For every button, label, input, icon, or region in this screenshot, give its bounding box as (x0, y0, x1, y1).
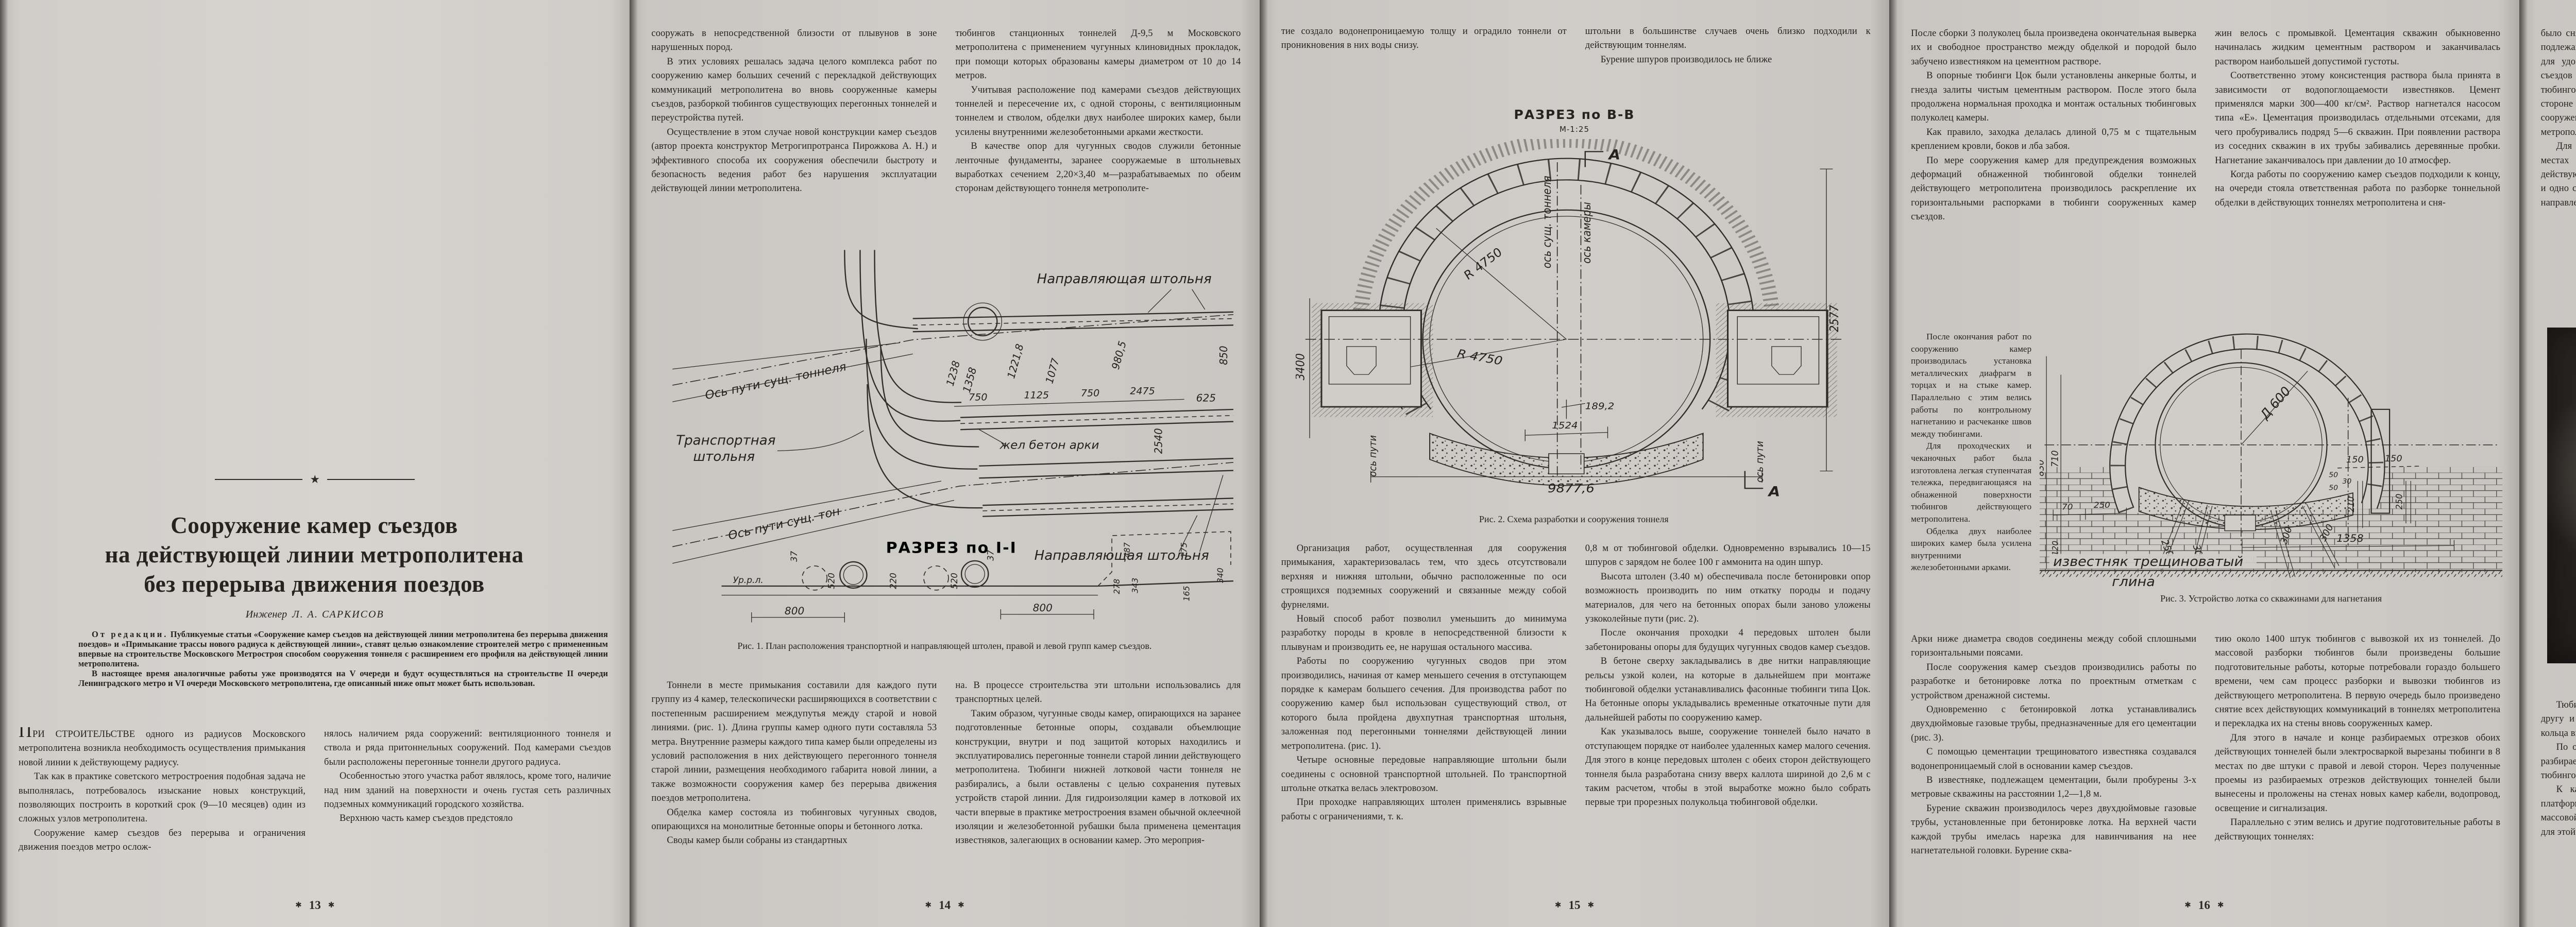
body-column: Тюбинговые кольца обделки были очень пло… (2541, 698, 2576, 868)
page-16: После сборки 3 полуколец была произведен… (1889, 0, 2519, 927)
article-title: Сооружение камер съездов на действующей … (31, 511, 598, 599)
page-number: ✱17✱ (2519, 898, 2576, 911)
svg-text:750: 750 (1081, 388, 1099, 399)
fig1-section-heading: РАЗРЕЗ по I-I (886, 539, 1017, 557)
figure-4-caption: Рис. 4. Вид камеры после разборки обделк… (2540, 671, 2576, 683)
svg-text:70: 70 (2062, 502, 2073, 512)
page-17: было снято до 50—60% болтов по фланцам и… (2519, 0, 2576, 927)
figure-1-plan-drawing: Направляющая штольня Ось пути сущ. тонне… (644, 233, 1244, 637)
page-number: ✱14✱ (630, 899, 1259, 912)
svg-text:800: 800 (1033, 602, 1053, 614)
svg-text:220: 220 (888, 573, 899, 589)
svg-text:R 4750: R 4750 (1461, 245, 1505, 282)
svg-text:520: 520 (826, 573, 836, 589)
svg-text:штольня: штольня (693, 449, 755, 465)
svg-text:150: 150 (2346, 455, 2364, 465)
svg-text:520: 520 (949, 573, 959, 589)
body-column-narrow: После окончания работ по сооружению каме… (1911, 331, 2031, 589)
fig1-transport-gallery-label: Транспортная (676, 433, 776, 449)
fig3-clay-label: глина (2112, 574, 2155, 587)
svg-text:30: 30 (2343, 477, 2352, 486)
journal-spread: ★ Сооружение камер съездов на действующе… (0, 0, 2576, 927)
tunnel-photo-ribs (2547, 328, 2576, 663)
svg-text:340: 340 (1215, 568, 1225, 583)
body-column: было снято до 50—60% болтов по фланцам и… (2541, 27, 2576, 323)
article-title-line: на действующей линии метрополитена (31, 540, 598, 570)
svg-text:210: 210 (2346, 496, 2356, 512)
svg-text:850: 850 (1218, 346, 1230, 365)
svg-text:50: 50 (2329, 484, 2338, 492)
body-column: штольни в большинстве случаев очень близ… (1585, 25, 1871, 98)
body-column: тие создало водонепроницаемую толщу и ог… (1281, 25, 1567, 98)
body-column: ПРИ СТРОИТЕЛЬСТВЕ одного из радиусов Мос… (19, 727, 306, 893)
article-title-line: без перерыва движения поездов (31, 570, 598, 599)
svg-text:175: 175 (1179, 542, 1189, 558)
body-column: нялось наличием ряда сооружений: вентиля… (324, 727, 611, 893)
fig1-guide-gallery-label: Направляющая штольня (1037, 271, 1212, 287)
svg-text:1077: 1077 (1044, 357, 1062, 385)
fig1-arches-label: жел бетон арки (999, 439, 1099, 452)
figure-2-heading: РАЗРЕЗ по В-В (1260, 107, 1889, 122)
page-15: тие создало водонепроницаемую толщу и ог… (1260, 0, 1889, 927)
svg-text:1358: 1358 (961, 366, 979, 394)
body-column: тию около 1400 штук тюбингов с вывозкой … (2215, 632, 2500, 889)
fig1-datum-label: Ур.р.л. (733, 575, 764, 585)
svg-text:278: 278 (1112, 579, 1122, 594)
svg-text:250: 250 (2094, 500, 2110, 510)
figure-2-caption: Рис. 2. Схема разработки и сооружения то… (1342, 513, 1806, 525)
svg-text:А: А (1767, 484, 1780, 500)
svg-text:1221,8: 1221,8 (1005, 342, 1026, 380)
star-divider-icon: ★ (0, 477, 630, 482)
svg-text:R 4750: R 4750 (1456, 347, 1504, 368)
page-13: ★ Сооружение камер съездов на действующе… (0, 0, 630, 927)
svg-text:2540: 2540 (1153, 428, 1165, 454)
svg-text:980,5: 980,5 (1110, 340, 1129, 371)
svg-text:189,2: 189,2 (1585, 401, 1615, 411)
svg-text:343: 343 (1130, 578, 1140, 593)
fig2-axis-tunnel-label: ось сущ. тоннеля (1540, 176, 1553, 268)
svg-text:А: А (1607, 147, 1620, 163)
svg-text:1524: 1524 (1552, 421, 1578, 431)
body-column: жин велось с промывкой. Цементация скваж… (2215, 27, 2500, 327)
svg-text:37: 37 (789, 551, 799, 561)
fig1-axis-label: Ось пути сущ. тоннеля (704, 360, 848, 402)
author-line: Инженер Л. А. САРКИСОВ (0, 609, 630, 621)
svg-text:1358: 1358 (2336, 533, 2363, 544)
svg-text:37: 37 (986, 550, 996, 561)
body-column: тюбингов станционных тоннелей Д-9,5 м Мо… (955, 27, 1241, 234)
svg-text:2475: 2475 (1130, 386, 1155, 397)
svg-text:3400: 3400 (1296, 353, 1308, 380)
svg-text:1125: 1125 (1024, 390, 1049, 401)
svg-text:487: 487 (1122, 542, 1132, 558)
svg-text:ось пути: ось пути (1754, 441, 1766, 483)
svg-text:2577: 2577 (1828, 305, 1841, 332)
fig3-limestone-label: известняк трещиноватый (2053, 554, 2243, 569)
body-column: на. В процессе строительства эти штольни… (955, 679, 1241, 885)
page-number: ✱16✱ (1889, 899, 2519, 912)
svg-text:710: 710 (2050, 450, 2060, 467)
body-column: сооружать в непосредственной близости от… (651, 27, 937, 234)
figure-1-caption: Рис. 1. План расположения транспортной и… (722, 640, 1166, 652)
page-14: сооружать в непосредственной близости от… (630, 0, 1259, 927)
tunnel-photo (2547, 328, 2576, 663)
svg-text:1238: 1238 (944, 359, 963, 387)
body-column: Арки ниже диаметра сводов соединены межд… (1911, 632, 2196, 889)
figure-2-section-drawing: ось сущ. тоннеля ось камеры R 4750 R 475… (1296, 139, 1853, 506)
svg-text:9877,6: 9877,6 (1548, 481, 1595, 495)
body-column: После сборки 3 полуколец была произведен… (1911, 27, 2196, 327)
svg-text:625: 625 (1196, 392, 1216, 404)
page-number: ✱15✱ (1260, 899, 1889, 912)
body-column: Тоннели в месте примыкания составили для… (651, 679, 937, 885)
body-column: Организация работ, осуществленная для со… (1281, 542, 1567, 883)
svg-text:250: 250 (2394, 494, 2404, 510)
article-title-line: Сооружение камер съездов (31, 511, 598, 540)
star-divider-icon: ★ (2519, 872, 2576, 883)
body-column: 0,8 м от тюбинговой обделки. Одновременн… (1585, 542, 1871, 883)
author-name: Л. А. САРКИСОВ (292, 609, 384, 620)
fig2-axis-chamber-label: ось камеры (1580, 202, 1593, 263)
figure-2-scale: М-1:25 (1260, 125, 1889, 134)
figure-3-caption: Рис. 3. Устройство лотка со скважинами д… (2040, 592, 2502, 605)
svg-text:ось пути: ось пути (1367, 435, 1379, 477)
svg-text:830: 830 (2040, 459, 2046, 476)
svg-text:50: 50 (2329, 471, 2338, 479)
svg-text:150: 150 (2385, 454, 2402, 464)
editorial-note: От редакции. Публикуемые статьи «Сооруже… (78, 629, 608, 688)
svg-text:165: 165 (1182, 586, 1192, 601)
svg-text:750: 750 (969, 392, 988, 403)
figure-3-invert-drawing: Д 600 250 300 300 300 210 250 150 150 50… (2040, 329, 2502, 587)
page-number: ✱13✱ (0, 899, 630, 912)
svg-text:800: 800 (785, 605, 804, 617)
